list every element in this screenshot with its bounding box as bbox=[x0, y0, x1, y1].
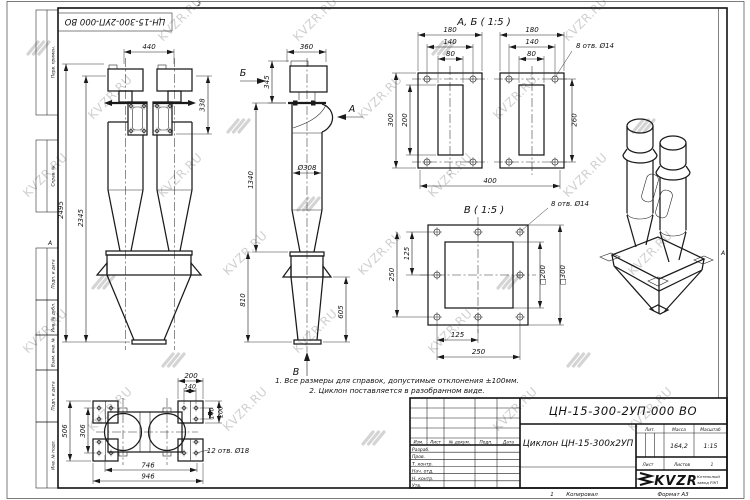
dim-front-h1: 2495 bbox=[57, 201, 65, 219]
dim-front-width: 440 bbox=[142, 43, 156, 51]
kvzr-logo-sub2: завод РЭП bbox=[697, 480, 718, 485]
stamp-col-sign: Подп. bbox=[479, 440, 492, 446]
watermark-logo-mark bbox=[93, 276, 114, 288]
dim-flange-total: 400 bbox=[483, 177, 497, 185]
dim-side-top: 345 bbox=[263, 75, 271, 89]
watermark-text: KVZR.RU bbox=[220, 228, 270, 278]
isometric-view bbox=[600, 119, 713, 314]
stamp-designation: ЦН-15-300-2УП-000 ВО bbox=[549, 404, 697, 418]
notes: 1. Все размеры для справок, допустимые о… bbox=[275, 376, 519, 395]
stamp-sheets-label: Листов bbox=[673, 462, 691, 468]
title-block: ЦН-15-300-2УП-000 ВО Циклон ЦН-15-300х2У… bbox=[410, 398, 727, 489]
fold-mark-right: А bbox=[720, 250, 725, 257]
dim-bottom-right-bolt: 140 bbox=[209, 408, 216, 420]
drawing-sheet: KVZR.RUKVZR.RUKVZR.RUKVZR.RUKVZR.RUKVZR.… bbox=[0, 0, 750, 500]
dim-side-dia: Ø308 bbox=[297, 164, 317, 172]
dim-flange-l-h: 300 bbox=[387, 113, 395, 127]
stamp-col-izm: Изм. bbox=[413, 440, 423, 446]
dim-view-b-left-full: 250 bbox=[388, 267, 396, 281]
stamp-col-list: Лист bbox=[429, 440, 441, 446]
watermark-text: KVZR.RU bbox=[290, 306, 340, 356]
callout-view-b-holes: 8 отв. Ø14 bbox=[551, 200, 589, 208]
copied-label: Копировал bbox=[566, 492, 598, 498]
stamp-row-prov: Пров. bbox=[412, 454, 425, 460]
watermark-text: KVZR.RU bbox=[560, 150, 610, 200]
margin-column: Перв. примен. Справ. № Подп. и дата Инв.… bbox=[36, 10, 58, 488]
dim-bottom-width: 946 bbox=[141, 473, 155, 481]
dim-flange-l-open: 80 bbox=[446, 50, 455, 58]
watermark-logo-mark bbox=[363, 432, 384, 444]
fold-mark-top: 2 bbox=[197, 2, 200, 8]
dim-view-b-left-half: 125 bbox=[403, 246, 411, 260]
stamp-name: Циклон ЦН-15-300х2УП bbox=[523, 439, 634, 449]
note-line-1: 1. Все размеры для справок, допустимые о… bbox=[275, 376, 519, 385]
stamp-row-utv: Утв. bbox=[412, 483, 421, 489]
dim-flange-r-w: 180 bbox=[525, 26, 539, 34]
dim-side-width: 360 bbox=[300, 43, 314, 51]
dim-flange-l-open-h: 200 bbox=[401, 113, 409, 127]
dim-bottom-right-w: 200 bbox=[218, 406, 225, 418]
dim-side-cone: 810 bbox=[239, 293, 247, 307]
view-arrow-b-label: Б bbox=[240, 68, 247, 79]
dim-flange-l-w: 180 bbox=[443, 26, 457, 34]
side-view: Ø308 Б А В 360 345 1340 810 605 bbox=[239, 43, 363, 378]
dim-view-b-bot-half: 125 bbox=[451, 331, 465, 339]
dim-bottom-left-bolt: 306 bbox=[79, 424, 87, 438]
front-view: 440 338 2495 2345 bbox=[57, 43, 212, 350]
flange-view-title: А, Б ( 1:5 ) bbox=[456, 17, 511, 28]
corner-designation-text: ЦН-15-300-2УП-000 ВО bbox=[64, 16, 165, 26]
watermark-text: KVZR.RU bbox=[560, 0, 610, 44]
stamp-col-date: Дата bbox=[502, 440, 514, 446]
dim-bottom-left-h: 506 bbox=[61, 424, 69, 438]
watermark-text: KVZR.RU bbox=[355, 228, 405, 278]
callout-12-holes: 12 отв. Ø18 bbox=[207, 447, 250, 455]
margin-label-sprav-n: Справ. № bbox=[51, 165, 57, 186]
watermark-logo-mark bbox=[163, 354, 184, 366]
dim-view-b-sq-in: □200 bbox=[539, 264, 547, 285]
dim-side-mid: 1340 bbox=[247, 171, 255, 189]
watermark-text: KVZR.RU bbox=[220, 384, 270, 434]
stamp-sheets-value: 1 bbox=[711, 462, 714, 468]
kvzr-logo-sub1: Котельный bbox=[697, 474, 720, 479]
dim-bottom-top-bolt: 140 bbox=[184, 384, 196, 391]
stamp-row-nachotd: Нач. отд. bbox=[412, 469, 434, 475]
stamp-mass-label: Масса bbox=[672, 427, 686, 433]
margin-label-podp-data-2: Подп. и дата bbox=[51, 381, 57, 411]
stamp-row-tkontr: Т. контр. bbox=[412, 461, 433, 467]
stamp-scale-value: 1:15 bbox=[704, 443, 718, 450]
dim-front-h2: 2345 bbox=[77, 209, 85, 227]
stamp-row-razrab: Разраб. bbox=[412, 447, 430, 453]
watermark-logo-mark bbox=[298, 198, 319, 210]
kvzr-logo: KVZR Котельный завод РЭП bbox=[640, 473, 720, 489]
corner-designation: ЦН-15-300-2УП-000 ВО bbox=[58, 13, 172, 31]
watermark-logo-mark bbox=[228, 120, 249, 132]
stamp-col-doc: № докум. bbox=[448, 440, 470, 446]
dim-flange-r-bolt: 140 bbox=[525, 38, 539, 46]
watermark-text: KVZR.RU bbox=[155, 150, 205, 200]
kvzr-logo-text: KVZR bbox=[654, 474, 698, 489]
view-b-title: В ( 1:5 ) bbox=[464, 205, 504, 216]
format-label: Формат А3 bbox=[657, 492, 689, 498]
fold-mark-left: А bbox=[47, 240, 52, 247]
note-line-2: 2. Циклон поставляется в разобранном вид… bbox=[309, 386, 485, 395]
dim-flange-r-open: 80 bbox=[527, 50, 536, 58]
dim-bottom-bolt-span: 746 bbox=[141, 462, 155, 470]
dim-flange-l-bolt: 140 bbox=[443, 38, 457, 46]
margin-label-inv-podl: Инв. № подл. bbox=[51, 440, 57, 470]
watermark-logo-mark bbox=[28, 42, 49, 54]
stamp-mass-value: 164,2 bbox=[670, 443, 688, 450]
dim-flange-r-h: 260 bbox=[571, 113, 579, 127]
margin-label-podp-data-1: Подп. и дата bbox=[51, 259, 57, 289]
dim-bottom-top-w: 200 bbox=[184, 372, 198, 380]
margin-label-perv-primen: Перв. примен. bbox=[51, 46, 57, 78]
view-b: В ( 1:5 ) 8 отв. Ø14 125 250 125 250 □20… bbox=[388, 200, 589, 360]
stamp-row-nkontr: Н. контр. bbox=[412, 476, 434, 482]
dim-view-b-sq-out: □300 bbox=[559, 264, 567, 285]
watermark-text: KVZR.RU bbox=[355, 72, 405, 122]
watermark-text: KVZR.RU bbox=[290, 0, 340, 44]
dim-side-out: 605 bbox=[337, 305, 345, 319]
callout-flange-holes: 8 отв. Ø14 bbox=[576, 42, 614, 50]
stamp-sheet-label: Лист bbox=[642, 462, 654, 468]
flange-view-ab: А, Б ( 1:5 ) 180 140 80 300 200 180 bbox=[387, 17, 614, 189]
view-arrow-a-label: А bbox=[348, 104, 356, 115]
copy-index: 1 bbox=[550, 492, 554, 498]
kvzr-logo-icon bbox=[640, 473, 651, 485]
dim-front-flange: 338 bbox=[199, 98, 207, 112]
watermark-text: KVZR.RU bbox=[490, 72, 540, 122]
stamp-scale-label: Масштаб bbox=[700, 427, 721, 433]
watermark-text: KVZR.RU bbox=[490, 384, 540, 434]
dim-view-b-bot-full: 250 bbox=[472, 348, 486, 356]
watermark-text: KVZR.RU bbox=[20, 306, 70, 356]
watermark-text: KVZR.RU bbox=[20, 150, 70, 200]
stamp-lit-label: Лит. bbox=[644, 427, 655, 433]
margin-label-vzam-inv: Взам. инв. № bbox=[51, 337, 57, 367]
bottom-margin: 1 Копировал Формат А3 bbox=[550, 492, 689, 498]
margin-label-inv-dubl: Инв. № дубл. bbox=[51, 303, 57, 332]
watermark-logo-mark bbox=[568, 354, 589, 366]
watermark-logo-mark bbox=[498, 276, 519, 288]
